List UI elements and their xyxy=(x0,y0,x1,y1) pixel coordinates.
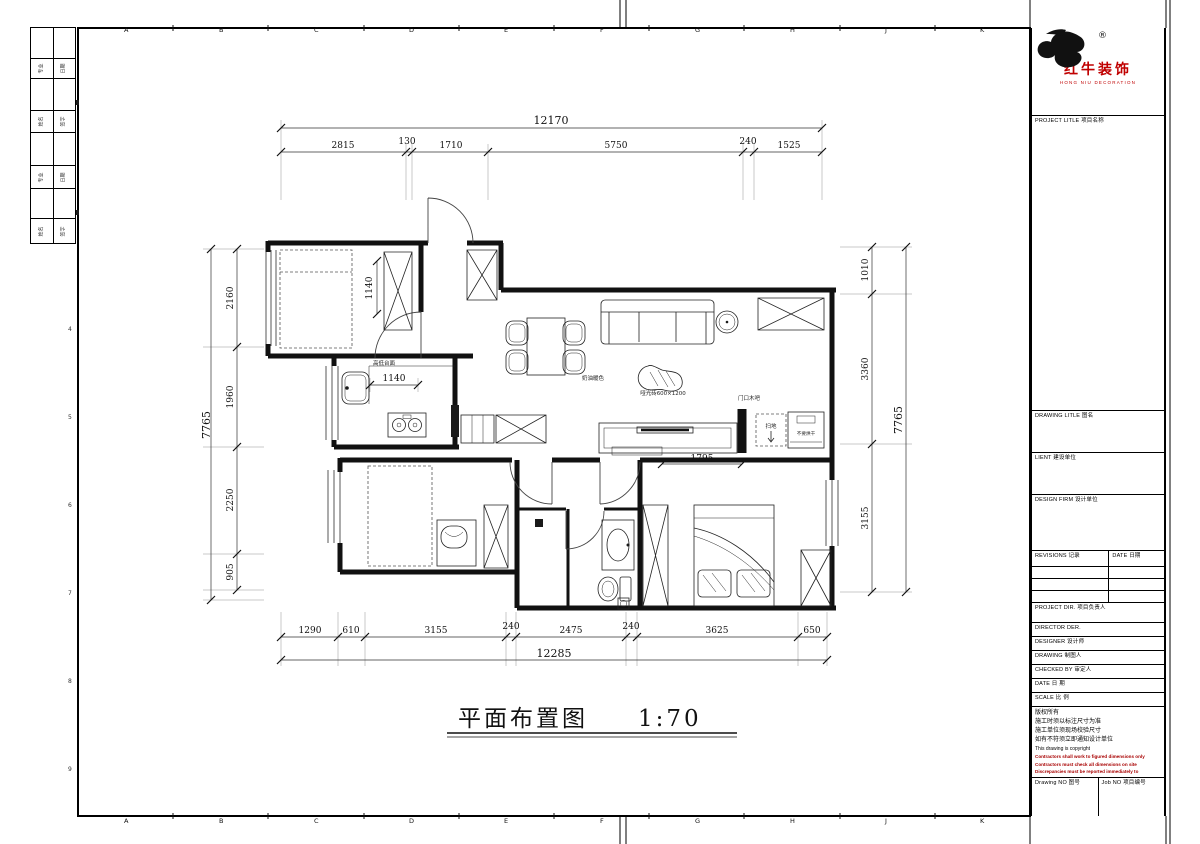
strip-label: 日期 xyxy=(62,63,67,73)
bathroom-fixtures xyxy=(535,519,634,609)
entry-appliances xyxy=(756,412,824,448)
dim-left-seg: 905 xyxy=(226,563,236,580)
grid-number: 4 xyxy=(68,326,72,333)
dimensions-left: 7765 2160 1960 2250 905 xyxy=(200,245,264,604)
dim-left-seg: 1960 xyxy=(226,385,236,408)
drawing-title: 平面布置图 1:70 xyxy=(447,706,737,737)
field-job-no: Job NO 项目编号 xyxy=(1099,778,1165,789)
grid-letter: C xyxy=(314,26,319,34)
dim-left-seg: 2250 xyxy=(226,488,236,511)
note-line: 版权所有 xyxy=(1035,709,1161,718)
pillow xyxy=(698,570,731,597)
tatami-dashed xyxy=(280,250,352,348)
dimensions-bottom: 12285 1290 610 3155 240 2475 240 3625 65… xyxy=(277,612,831,666)
grid-letter: H xyxy=(790,817,795,825)
dim-bottom-seg: 1290 xyxy=(299,626,322,636)
note-line: 施工时须以标注尺寸为准 xyxy=(1035,718,1161,727)
field-drawing-by: DRAWING 制图人 xyxy=(1032,651,1164,662)
grid-letter: D xyxy=(409,26,414,34)
field-rev-date: DATE 日期 xyxy=(1109,551,1164,562)
grid-letter: G xyxy=(695,26,700,34)
field-checked-by: CHECKED BY 审定人 xyxy=(1032,665,1164,676)
field-date: DATE 日 期 xyxy=(1032,679,1164,690)
grid-letter: J xyxy=(885,817,887,825)
dimensions-right: 7765 1010 3360 3155 xyxy=(840,243,912,596)
sofa xyxy=(601,300,714,344)
floor-plan-svg: 12170 2815 130 1710 5750 240 1525 12285 … xyxy=(0,0,1200,844)
coffee-table xyxy=(638,365,682,391)
registered-mark: ® xyxy=(1098,31,1107,41)
bedroom2-furniture xyxy=(368,466,476,566)
dim-bottom-seg: 2475 xyxy=(560,626,583,636)
grid-letter: A xyxy=(124,26,128,34)
field-project-dir: PROJECT DIR. 项目负责人 xyxy=(1032,603,1164,614)
study-room xyxy=(280,250,352,348)
grid-letter: F xyxy=(600,817,604,825)
strip-label: 签字 xyxy=(62,116,67,126)
signature-strip: 专业 日期 姓名 签字 专业 日期 姓名 签字 xyxy=(30,27,76,244)
strip-label: 姓名 xyxy=(39,116,44,126)
dim-wardrobe: 1140 xyxy=(365,276,375,299)
dim-bottom-seg: 3155 xyxy=(425,626,448,636)
dim-tv-wall: 1795 xyxy=(691,454,714,464)
pantry-cabinet xyxy=(461,415,494,443)
side-table xyxy=(716,311,738,333)
dim-top-seg: 2815 xyxy=(332,141,355,151)
desk xyxy=(437,520,476,566)
warning-line: Contractors shall work to figured dimens… xyxy=(1035,753,1161,761)
note-line: 如有不符须立即通知设计单位 xyxy=(1035,736,1161,745)
grid-number: 6 xyxy=(68,502,72,509)
grid-letter: D xyxy=(409,817,414,825)
strip-label: 日期 xyxy=(62,172,67,182)
strip-label: 专业 xyxy=(39,172,44,182)
dim-bottom-seg: 3625 xyxy=(706,626,729,636)
warning-line: Contractors must check all dimensions on… xyxy=(1035,761,1161,769)
dim-top-seg: 1525 xyxy=(778,141,801,151)
field-director: DIRECTOR DER. xyxy=(1032,623,1164,634)
grid-number: 8 xyxy=(68,678,72,685)
grid-number: 5 xyxy=(68,414,72,421)
field-drawing-title: DRAWING LITLE 图名 xyxy=(1032,411,1164,422)
dim-top-seg: 1710 xyxy=(440,141,463,151)
plan-title-text: 平面布置图 xyxy=(458,706,588,732)
kitchen xyxy=(342,366,494,443)
grid-letter: E xyxy=(504,817,508,825)
plan-scale-text: 1:70 xyxy=(638,706,702,732)
drawing-sheet: 12170 2815 130 1710 5750 240 1525 12285 … xyxy=(0,0,1200,844)
dim-counter: 1140 xyxy=(383,374,406,384)
label-tile: 哑光砖600×1200 xyxy=(640,389,686,397)
field-drawing-no: Drawing NO 图号 xyxy=(1032,778,1098,789)
field-revisions: REVISIONS 记录 xyxy=(1032,551,1108,562)
dim-top-seg: 5750 xyxy=(605,141,628,151)
strip-label: 专业 xyxy=(39,63,44,73)
pillow xyxy=(737,570,770,597)
label-dryer: 不要烘干 xyxy=(797,430,816,437)
doors xyxy=(375,198,640,549)
walls xyxy=(268,241,836,610)
note-line: 施工单位须现场校验尺寸 xyxy=(1035,727,1161,736)
bull-logo-icon: ® xyxy=(1032,28,1112,72)
dim-bottom-seg: 240 xyxy=(622,622,639,632)
grid-number: 9 xyxy=(68,766,72,773)
grid-letter: E xyxy=(504,26,508,34)
dim-top-overall: 12170 xyxy=(534,114,569,127)
strip-label: 姓名 xyxy=(39,226,44,236)
field-design-firm: DESIGN FIRM 设计单位 xyxy=(1032,495,1164,506)
toilet xyxy=(598,577,618,601)
grid-number: 7 xyxy=(68,590,72,597)
dim-bottom-seg: 650 xyxy=(803,626,820,636)
grid-letter: A xyxy=(124,817,128,825)
warning-line: Discrepancies must be reported immediate… xyxy=(1035,768,1161,778)
kitchen-sliding-door xyxy=(451,405,459,437)
dim-top-seg: 240 xyxy=(739,137,756,147)
bed2-dashed xyxy=(368,466,432,566)
label-counter: 高低台面 xyxy=(373,359,396,367)
grid-letter: F xyxy=(600,26,604,34)
label-cream: 奶油暖色 xyxy=(582,374,605,382)
plan-labels: 高低台面 奶油暖色 哑光砖600×1200 门口木吧 扫地 不要烘干 xyxy=(373,359,816,437)
dim-bottom-overall: 12285 xyxy=(537,647,572,660)
note-line: This drawing is copyright xyxy=(1035,745,1161,753)
grid-letter: B xyxy=(219,817,223,825)
dim-right-seg: 3360 xyxy=(861,357,871,380)
field-project-title: PROJECT LITLE 项目名称 xyxy=(1032,116,1164,127)
field-scale: SCALE 比 例 xyxy=(1032,693,1164,704)
dim-right-seg: 3155 xyxy=(861,506,871,529)
dimensions-top: 12170 2815 130 1710 5750 240 1525 xyxy=(277,114,826,200)
wash-basin xyxy=(607,529,629,561)
tv-console xyxy=(599,423,737,455)
grid-letter: B xyxy=(219,26,223,34)
grid-letter: K xyxy=(980,817,984,825)
grid-letter: G xyxy=(695,817,700,825)
dim-bottom-seg: 240 xyxy=(502,622,519,632)
dim-left-seg: 2160 xyxy=(226,286,236,309)
field-designer: DESIGNER 设计师 xyxy=(1032,637,1164,648)
grid-letter: H xyxy=(790,26,795,34)
grid-letter: K xyxy=(980,26,984,34)
field-client: LIENT 建设单位 xyxy=(1032,453,1164,464)
dim-top-seg: 130 xyxy=(398,137,415,147)
desk-chair xyxy=(441,526,467,548)
grid-letter: J xyxy=(885,26,887,34)
dryer-cabinet xyxy=(788,412,824,448)
dim-right-seg: 1010 xyxy=(861,258,871,281)
label-door-bar: 门口木吧 xyxy=(738,394,761,402)
copyright-notes: 版权所有 施工时须以标注尺寸为准 施工单位须现场校验尺寸 如有不符须立即通知设计… xyxy=(1032,707,1164,778)
company-logo: ® 红牛装饰 HONG NIU DECORATION xyxy=(1032,28,1164,116)
dim-right-overall: 7765 xyxy=(892,406,905,434)
dining-set xyxy=(506,318,585,375)
shower-head xyxy=(535,519,543,527)
dim-bottom-seg: 610 xyxy=(342,626,359,636)
stove xyxy=(388,413,426,437)
dim-left-overall: 7765 xyxy=(200,411,213,439)
master-bed xyxy=(694,505,774,606)
strip-label: 签字 xyxy=(62,226,67,236)
label-vacuum: 扫地 xyxy=(765,422,777,430)
vacuum-dock xyxy=(756,414,786,446)
brand-name-en: HONG NIU DECORATION xyxy=(1060,80,1136,85)
grid-letter: C xyxy=(314,817,319,825)
title-block: ® 红牛装饰 HONG NIU DECORATION PROJECT LITLE… xyxy=(1030,28,1166,816)
